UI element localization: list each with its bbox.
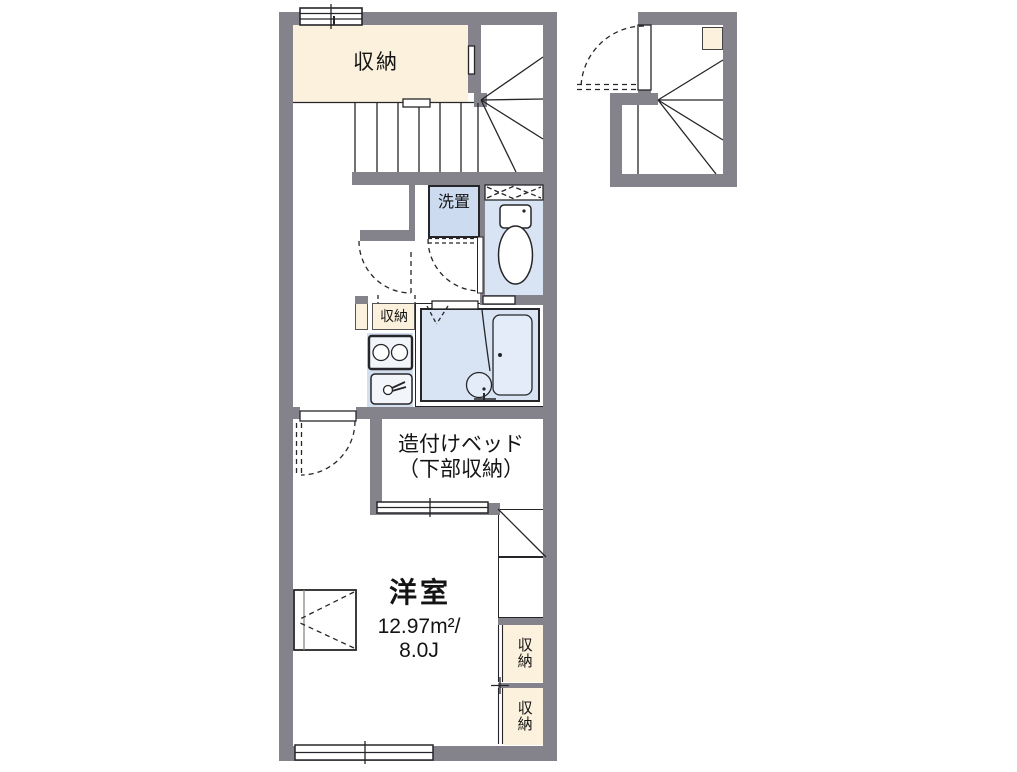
label-closet-lower: 収納 (515, 700, 532, 732)
label-bed-line1: 造付けベッド (398, 433, 524, 457)
kitchen-counter (367, 333, 413, 408)
label-room-area: 12.97m²/ (378, 615, 461, 639)
wall-kitchen-stub (355, 296, 368, 304)
wall-entry-left-low (610, 105, 622, 174)
lavatory-door-arc (428, 237, 483, 293)
wall-entry-right (723, 12, 737, 187)
closet-a (498, 509, 546, 557)
wall-washroom-stub (360, 230, 415, 241)
wall-closet-divider2 (498, 683, 546, 688)
wall-mid-left (293, 407, 300, 419)
wall-bottom (279, 746, 557, 761)
wall-closet-divider (498, 618, 546, 625)
wall-top (279, 12, 557, 25)
washroom-door-arc (359, 241, 415, 303)
closet-b (498, 557, 546, 618)
wall-left (279, 12, 293, 761)
wall-toilet-divider (480, 185, 485, 298)
wall-right (543, 12, 557, 761)
window-left (294, 590, 356, 650)
wall-stair-hub (474, 93, 487, 107)
entry-cubby (702, 27, 723, 50)
label-washer: 洗置 (438, 194, 470, 212)
label-room-name: 洋室 (389, 577, 451, 609)
label-closet-upper: 収納 (515, 637, 532, 669)
wall-mid-right (356, 407, 543, 419)
wall-under-stairs (352, 172, 543, 185)
floor-plan: 収納 洗置 収納 造付けベッド （下部収納） 洋室 12.97m²/ 8.0J … (0, 0, 1017, 772)
wall-bed-left (370, 419, 382, 503)
label-storage-small: 収納 (380, 308, 408, 324)
label-bed-line2: （下部収納） (398, 458, 524, 482)
wall-storage-right (468, 25, 481, 93)
wall-toilet-bottom (480, 295, 543, 305)
label-storage-top: 収納 (353, 51, 399, 75)
bathroom-floor (420, 308, 540, 402)
wall-bed-bottom (370, 503, 500, 515)
bedroom-door-arc (297, 411, 357, 476)
wall-washroom-vert (409, 185, 415, 233)
wall-entry-bottom (610, 174, 737, 187)
room-toilet (485, 185, 543, 298)
storage-sliver (355, 303, 368, 330)
label-room-size: 8.0J (399, 639, 439, 663)
wall-entry-stub (610, 93, 658, 105)
